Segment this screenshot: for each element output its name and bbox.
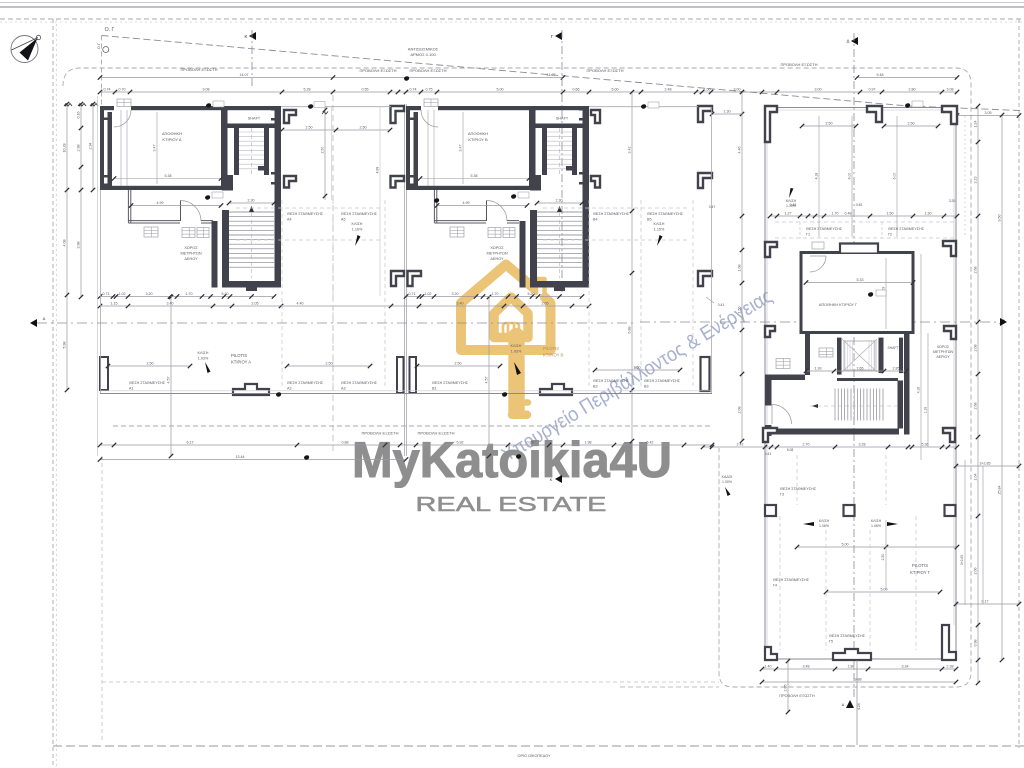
svg-text:5.92: 5.92 [457, 441, 464, 445]
svg-text:1.18: 1.18 [924, 407, 928, 414]
svg-text:ΘΕΣΗ ΣΤΑΘΜΕΥΣΗΣ: ΘΕΣΗ ΣΤΑΘΜΕΥΣΗΣ [644, 379, 681, 383]
svg-text:ΚΤΙΡΙΟΥ Β: ΚΤΙΡΙΟΥ Β [468, 137, 488, 142]
svg-text:1.02: 1.02 [119, 292, 126, 296]
svg-text:3.34: 3.34 [902, 665, 909, 669]
svg-text:PILOTIS: PILOTIS [231, 353, 247, 358]
svg-text:ΘΕΣΗ ΣΤΑΘΜΕΥΣΗΣ: ΘΕΣΗ ΣΤΑΘΜΕΥΣΗΣ [129, 381, 166, 385]
svg-text:ΠΡΟΒΟΛΗ ΕΞΩΣΤΗ: ΠΡΟΒΟΛΗ ΕΞΩΣΤΗ [359, 68, 396, 73]
svg-text:SHAFT: SHAFT [556, 117, 569, 121]
svg-text:1.70: 1.70 [832, 212, 839, 216]
svg-text:0.88: 0.88 [342, 441, 349, 445]
svg-text:0.16: 0.16 [77, 112, 81, 119]
svg-text:1.70: 1.70 [186, 292, 193, 296]
svg-text:PILOTIS: PILOTIS [543, 346, 559, 351]
svg-text:2.05: 2.05 [252, 302, 259, 306]
svg-text:1.02: 1.02 [425, 292, 432, 296]
svg-text:5.36: 5.36 [922, 443, 929, 447]
svg-text:1.93: 1.93 [815, 367, 822, 371]
svg-text:9.88: 9.88 [855, 678, 862, 682]
svg-text:3+2.85: 3+2.85 [960, 555, 964, 565]
svg-text:Α1: Α1 [129, 387, 134, 391]
svg-text:ΘΕΣΗ ΣΤΑΘΜΕΥΣΗΣ: ΘΕΣΗ ΣΤΑΘΜΕΥΣΗΣ [432, 381, 469, 385]
svg-text:0.45: 0.45 [856, 203, 863, 207]
svg-text:Γ5: Γ5 [829, 640, 833, 644]
svg-text:0.74: 0.74 [410, 88, 417, 92]
svg-text:0.97: 0.97 [869, 88, 876, 92]
svg-text:ΑΝΤΙΣΕΙΣΜΙΚΟΣ: ΑΝΤΙΣΕΙΣΜΙΚΟΣ [408, 47, 439, 52]
svg-text:ΘΕΣΗ ΣΤΑΘΜΕΥΣΗΣ: ΘΕΣΗ ΣΤΑΘΜΕΥΣΗΣ [773, 578, 810, 582]
svg-text:1.15%: 1.15% [654, 228, 665, 232]
svg-text:6.42: 6.42 [647, 441, 654, 445]
svg-text:2.50: 2.50 [306, 126, 313, 130]
svg-text:2.38: 2.38 [947, 665, 954, 669]
svg-text:0.41: 0.41 [765, 452, 772, 456]
svg-text:3.42: 3.42 [628, 147, 632, 154]
svg-text:Ο.Γ: Ο.Γ [97, 43, 101, 49]
svg-text:2.94: 2.94 [89, 143, 93, 150]
svg-text:Α2: Α2 [287, 387, 292, 391]
svg-text:ΚΤΙΡΙΟΥ Α: ΚΤΙΡΙΟΥ Α [162, 137, 181, 142]
svg-text:3.40: 3.40 [167, 302, 174, 306]
svg-text:ΑΠΟΘΗΚΗ ΚΤΙΡΙΟΥ Γ: ΑΠΟΘΗΚΗ ΚΤΙΡΙΟΥ Γ [819, 303, 857, 307]
svg-text:0.48: 0.48 [845, 212, 852, 216]
svg-text:0.71: 0.71 [103, 292, 110, 296]
svg-text:5.00: 5.00 [881, 588, 888, 592]
svg-text:ΘΕΣΗ ΣΤΑΘΜΕΥΣΗΣ: ΘΕΣΗ ΣΤΑΘΜΕΥΣΗΣ [829, 634, 866, 638]
svg-text:0.55: 0.55 [362, 88, 369, 92]
svg-text:2.68: 2.68 [974, 267, 978, 274]
svg-text:ΚΤΙΡΙΟΥ Β: ΚΤΙΡΙΟΥ Β [543, 353, 563, 358]
svg-text:ΚΛΙΣΗ: ΚΛΙΣΗ [819, 519, 830, 523]
svg-text:6.00: 6.00 [893, 173, 897, 180]
svg-text:25.84: 25.84 [998, 486, 1002, 495]
svg-text:2.85: 2.85 [893, 367, 900, 371]
svg-text:0.41: 0.41 [718, 303, 725, 307]
svg-text:ΘΕΣΗ ΣΤΑΘΜΕΥΣΗΣ: ΘΕΣΗ ΣΤΑΘΜΕΥΣΗΣ [287, 381, 324, 385]
svg-text:3.28: 3.28 [859, 443, 866, 447]
svg-text:ΠΡΟΒΟΛΗ ΕΞΩΣΤΗ: ΠΡΟΒΟΛΗ ΕΞΩΣΤΗ [409, 68, 446, 73]
svg-text:4.18: 4.18 [917, 387, 921, 394]
svg-text:ΟΡΙΟ ΟΙΚΟΠΕΔΟΥ: ΟΡΙΟ ΟΙΚΟΠΕΔΟΥ [517, 754, 550, 758]
svg-text:2.50: 2.50 [881, 554, 885, 561]
svg-text:PILOTIS: PILOTIS [912, 563, 928, 568]
svg-text:Γ2: Γ2 [888, 233, 892, 237]
svg-text:1.06%: 1.06% [819, 524, 829, 528]
svg-text:2.05: 2.05 [542, 302, 549, 306]
svg-text:5.20: 5.20 [528, 292, 535, 296]
svg-text:1.50: 1.50 [738, 307, 742, 314]
svg-text:3.23: 3.23 [974, 177, 978, 184]
svg-text:9.48: 9.48 [877, 73, 884, 77]
svg-text:4.24: 4.24 [857, 703, 861, 710]
svg-text:4.99: 4.99 [463, 201, 470, 205]
svg-text:ΚΤΙΡΙΟΥ Γ: ΚΤΙΡΙΟΥ Γ [910, 570, 930, 575]
svg-text:ΚΛΙΣΗ: ΚΛΙΣΗ [654, 222, 665, 226]
svg-text:SHAFT: SHAFT [887, 346, 898, 350]
svg-text:MyKatoikia4U: MyKatoikia4U [352, 432, 672, 488]
svg-text:Κ: Κ [550, 477, 553, 482]
svg-text:REAL ESTATE: REAL ESTATE [416, 493, 607, 516]
svg-text:2.42: 2.42 [737, 443, 744, 447]
svg-text:ΠΡΟΒΟΛΗ ΕΞΩΣΤΗ: ΠΡΟΒΟΛΗ ΕΞΩΣΤΗ [780, 62, 817, 67]
svg-text:Α: Α [43, 316, 46, 321]
svg-text:Α3: Α3 [341, 387, 346, 391]
svg-text:ΧΩΡΟΣ: ΧΩΡΟΣ [490, 246, 504, 250]
svg-text:ΑΡΜΟΣ 0.100: ΑΡΜΟΣ 0.100 [410, 52, 436, 57]
svg-text:3.20: 3.20 [146, 292, 153, 296]
svg-text:9.08: 9.08 [203, 88, 210, 92]
svg-text:2.85: 2.85 [784, 685, 788, 692]
svg-text:ΚΛΙΣΗ: ΚΛΙΣΗ [198, 351, 209, 355]
svg-text:4.57: 4.57 [167, 377, 171, 384]
svg-text:6.00: 6.00 [848, 173, 852, 180]
svg-text:0.71: 0.71 [409, 292, 416, 296]
svg-text:ΜΕΤΡΗΤΩΝ: ΜΕΤΡΗΤΩΝ [180, 252, 201, 256]
svg-text:ΧΩΡΟΣ: ΧΩΡΟΣ [184, 246, 198, 250]
svg-text:Γ1: Γ1 [806, 233, 810, 237]
svg-text:6.17: 6.17 [187, 441, 194, 445]
svg-text:ΚΑΔΟΙ: ΚΑΔΟΙ [722, 475, 733, 479]
svg-text:2.50: 2.50 [455, 362, 462, 366]
svg-text:ΘΕΣΗ ΣΤΑΘΜΕΥΣΗΣ: ΘΕΣΗ ΣΤΑΘΜΕΥΣΗΣ [287, 212, 324, 216]
svg-text:Ο. Γ: Ο. Γ [105, 27, 115, 33]
svg-text:ΑΕΡΙΟΥ: ΑΕΡΙΟΥ [936, 355, 950, 359]
svg-text:1.03%: 1.03% [198, 357, 209, 361]
svg-text:1.88: 1.88 [848, 665, 855, 669]
svg-text:13.44: 13.44 [236, 455, 245, 459]
svg-text:1.70: 1.70 [492, 292, 499, 296]
svg-text:2.50: 2.50 [826, 122, 833, 126]
svg-text:5.98: 5.98 [63, 342, 67, 349]
svg-text:14.07: 14.07 [240, 73, 249, 77]
svg-text:4.40: 4.40 [297, 302, 304, 306]
svg-text:3.98: 3.98 [77, 242, 81, 249]
svg-text:2.30: 2.30 [248, 199, 255, 203]
svg-text:Β2: Β2 [593, 385, 598, 389]
svg-text:5.08: 5.08 [787, 448, 794, 452]
svg-text:2.80: 2.80 [909, 88, 916, 92]
svg-text:5.00: 5.00 [497, 88, 504, 92]
svg-text:ΚΤΙΡΙΟΥ Α: ΚΤΙΡΙΟΥ Α [231, 360, 251, 365]
svg-text:ΚΛΙΣΗ: ΚΛΙΣΗ [871, 519, 882, 523]
svg-text:1.16%: 1.16% [352, 228, 363, 232]
svg-text:3.47: 3.47 [459, 145, 463, 152]
svg-text:5.38: 5.38 [165, 174, 172, 178]
svg-text:ΘΕΣΗ ΣΤΑΘΜΕΥΣΗΣ: ΘΕΣΗ ΣΤΑΘΜΕΥΣΗΣ [780, 487, 817, 491]
svg-text:1.50: 1.50 [887, 212, 894, 216]
svg-text:6.88: 6.88 [628, 327, 632, 334]
svg-text:1.50: 1.50 [704, 88, 711, 92]
svg-text:1.27: 1.27 [785, 212, 792, 216]
svg-text:ΘΕΣΗ ΣΤΑΘΜΕΥΣΗΣ: ΘΕΣΗ ΣΤΑΘΜΕΥΣΗΣ [593, 212, 630, 216]
svg-text:Δ: Δ [842, 702, 845, 707]
svg-text:Α4: Α4 [287, 218, 292, 222]
svg-text:ΑΠΟΘΗΚΗ: ΑΠΟΘΗΚΗ [468, 131, 488, 136]
svg-text:2.06: 2.06 [974, 568, 978, 575]
svg-text:Β4: Β4 [593, 218, 598, 222]
svg-text:ΘΕΣΗ ΣΤΑΘΜΕΥΣΗΣ: ΘΕΣΗ ΣΤΑΘΜΕΥΣΗΣ [888, 227, 925, 231]
svg-text:ΘΕΣΗ ΣΤΑΘΜΕΥΣΗΣ: ΘΕΣΗ ΣΤΑΘΜΕΥΣΗΣ [341, 212, 378, 216]
svg-text:2.70: 2.70 [803, 443, 810, 447]
svg-text:ΘΕΣΗ ΣΤΑΘΜΕΥΣΗΣ: ΘΕΣΗ ΣΤΑΘΜΕΥΣΗΣ [593, 379, 630, 383]
svg-text:1.40: 1.40 [765, 665, 772, 669]
svg-text:1.06%: 1.06% [871, 524, 881, 528]
svg-text:2.08: 2.08 [974, 345, 978, 352]
svg-text:0.74: 0.74 [104, 88, 111, 92]
svg-text:4.18: 4.18 [815, 173, 819, 180]
svg-text:Α5: Α5 [341, 218, 346, 222]
svg-text:1.24: 1.24 [974, 121, 978, 128]
svg-text:ΧΩΡΟΣ: ΧΩΡΟΣ [937, 345, 950, 349]
svg-text:1.03%: 1.03% [511, 350, 522, 354]
svg-text:ΘΕΣΗ ΣΤΑΘΜΕΥΣΗΣ: ΘΕΣΗ ΣΤΑΘΜΕΥΣΗΣ [806, 227, 843, 231]
svg-text:4.99: 4.99 [157, 201, 164, 205]
svg-text:ΘΕΣΗ ΣΤΑΘΜΕΥΣΗΣ: ΘΕΣΗ ΣΤΑΘΜΕΥΣΗΣ [341, 381, 378, 385]
svg-text:5.28: 5.28 [304, 88, 311, 92]
svg-text:ΑΠΟΘΗΚΗ: ΑΠΟΘΗΚΗ [162, 131, 182, 136]
svg-text:3.20: 3.20 [452, 292, 459, 296]
svg-text:9.50: 9.50 [998, 215, 1002, 222]
svg-text:1.30: 1.30 [925, 212, 932, 216]
svg-text:ΠΡΟΒΟΛΗ ΕΞΩΣΤΗ: ΠΡΟΒΟΛΗ ΕΞΩΣΤΗ [779, 694, 814, 698]
svg-text:4.08: 4.08 [63, 240, 67, 247]
svg-text:ΠΡΟΒΟΛΗ ΕΞΩΣΤΗ: ΠΡΟΒΟΛΗ ΕΞΩΣΤΗ [361, 431, 398, 436]
svg-text:2.50: 2.50 [326, 362, 333, 366]
svg-text:5.20: 5.20 [222, 292, 229, 296]
svg-text:3.20: 3.20 [949, 199, 956, 203]
svg-text:Γ4: Γ4 [773, 584, 777, 588]
svg-text:5.00: 5.00 [612, 88, 619, 92]
svg-text:14.07: 14.07 [547, 73, 556, 77]
svg-text:2.48: 2.48 [665, 88, 672, 92]
svg-text:ΜΕΤΡΗΤΩΝ: ΜΕΤΡΗΤΩΝ [933, 350, 953, 354]
svg-text:4.99: 4.99 [376, 167, 380, 174]
svg-text:Β5: Β5 [647, 218, 652, 222]
svg-text:5.38: 5.38 [471, 174, 478, 178]
svg-text:ΠΡΟΒΟΛΗ ΕΞΩΣΤΗ: ΠΡΟΒΟΛΗ ΕΞΩΣΤΗ [417, 431, 454, 436]
svg-text:5.00: 5.00 [842, 543, 849, 547]
svg-text:Γ3: Γ3 [780, 493, 784, 497]
svg-text:0.89: 0.89 [527, 441, 534, 445]
svg-text:SHAFT: SHAFT [248, 117, 261, 121]
svg-text:0.70: 0.70 [119, 88, 126, 92]
svg-text:Β1: Β1 [432, 387, 437, 391]
svg-text:3.48: 3.48 [803, 665, 810, 669]
svg-text:1.98: 1.98 [585, 441, 592, 445]
svg-text:ΔΕΗΟΥ: ΔΕΗΟΥ [490, 257, 504, 261]
svg-text:3.47: 3.47 [153, 145, 157, 152]
svg-text:0.66: 0.66 [573, 88, 580, 92]
svg-text:2.50: 2.50 [360, 126, 367, 130]
svg-text:ΔΕΗΟΥ: ΔΕΗΟΥ [184, 257, 198, 261]
svg-text:2.30: 2.30 [556, 199, 563, 203]
svg-text:2.50: 2.50 [147, 362, 154, 366]
svg-text:7.65: 7.65 [857, 367, 864, 371]
svg-text:3+2.85: 3+2.85 [979, 462, 990, 466]
svg-text:ΠΡΟΒΟΛΗ ΕΞΩΣΤΗ: ΠΡΟΒΟΛΗ ΕΞΩΣΤΗ [180, 67, 217, 72]
svg-text:4.46: 4.46 [738, 147, 742, 154]
svg-text:3.08: 3.08 [947, 88, 954, 92]
svg-text:0.75: 0.75 [426, 88, 433, 92]
svg-text:0.98: 0.98 [974, 640, 978, 647]
svg-text:Κ: Κ [244, 34, 247, 39]
svg-text:1.30: 1.30 [724, 110, 731, 114]
svg-text:ΚΛΙΣΗ: ΚΛΙΣΗ [511, 344, 522, 348]
svg-text:0.17: 0.17 [982, 600, 989, 604]
svg-text:1.00%: 1.00% [722, 480, 732, 484]
svg-text:2.08: 2.08 [738, 407, 742, 414]
svg-text:1.08: 1.08 [738, 265, 742, 272]
svg-text:ΘΕΣΗ ΣΤΑΘΜΕΥΣΗΣ: ΘΕΣΗ ΣΤΑΘΜΕΥΣΗΣ [647, 212, 684, 216]
svg-text:3.40: 3.40 [457, 302, 464, 306]
svg-text:1.15: 1.15 [111, 302, 118, 306]
svg-text:ΠΡΟΒΟΛΗ ΕΞΩΣΤΗ: ΠΡΟΒΟΛΗ ΕΞΩΣΤΗ [586, 68, 623, 73]
svg-text:Δ: Δ [846, 39, 849, 44]
svg-text:1.04: 1.04 [974, 474, 978, 481]
svg-text:Β3: Β3 [644, 385, 649, 389]
svg-text:2.50: 2.50 [321, 147, 325, 154]
svg-text:0.45: 0.45 [790, 203, 797, 207]
svg-text:3.05: 3.05 [985, 111, 992, 115]
svg-text:2.68: 2.68 [974, 403, 978, 410]
svg-text:4.57: 4.57 [485, 377, 489, 384]
svg-text:5.33: 5.33 [857, 278, 864, 282]
svg-text:3.00: 3.00 [734, 88, 741, 92]
svg-text:2.50: 2.50 [908, 122, 915, 126]
svg-text:0.47: 0.47 [709, 205, 716, 209]
svg-text:ΚΛΙΣΗ: ΚΛΙΣΗ [352, 222, 363, 226]
svg-text:2.50: 2.50 [634, 366, 641, 370]
svg-text:3.00: 3.00 [815, 88, 822, 92]
svg-text:ΜΕΤΡΗΤΩΝ: ΜΕΤΡΗΤΩΝ [486, 252, 507, 256]
svg-text:2.98: 2.98 [77, 145, 81, 152]
svg-text:10.28: 10.28 [63, 144, 67, 153]
